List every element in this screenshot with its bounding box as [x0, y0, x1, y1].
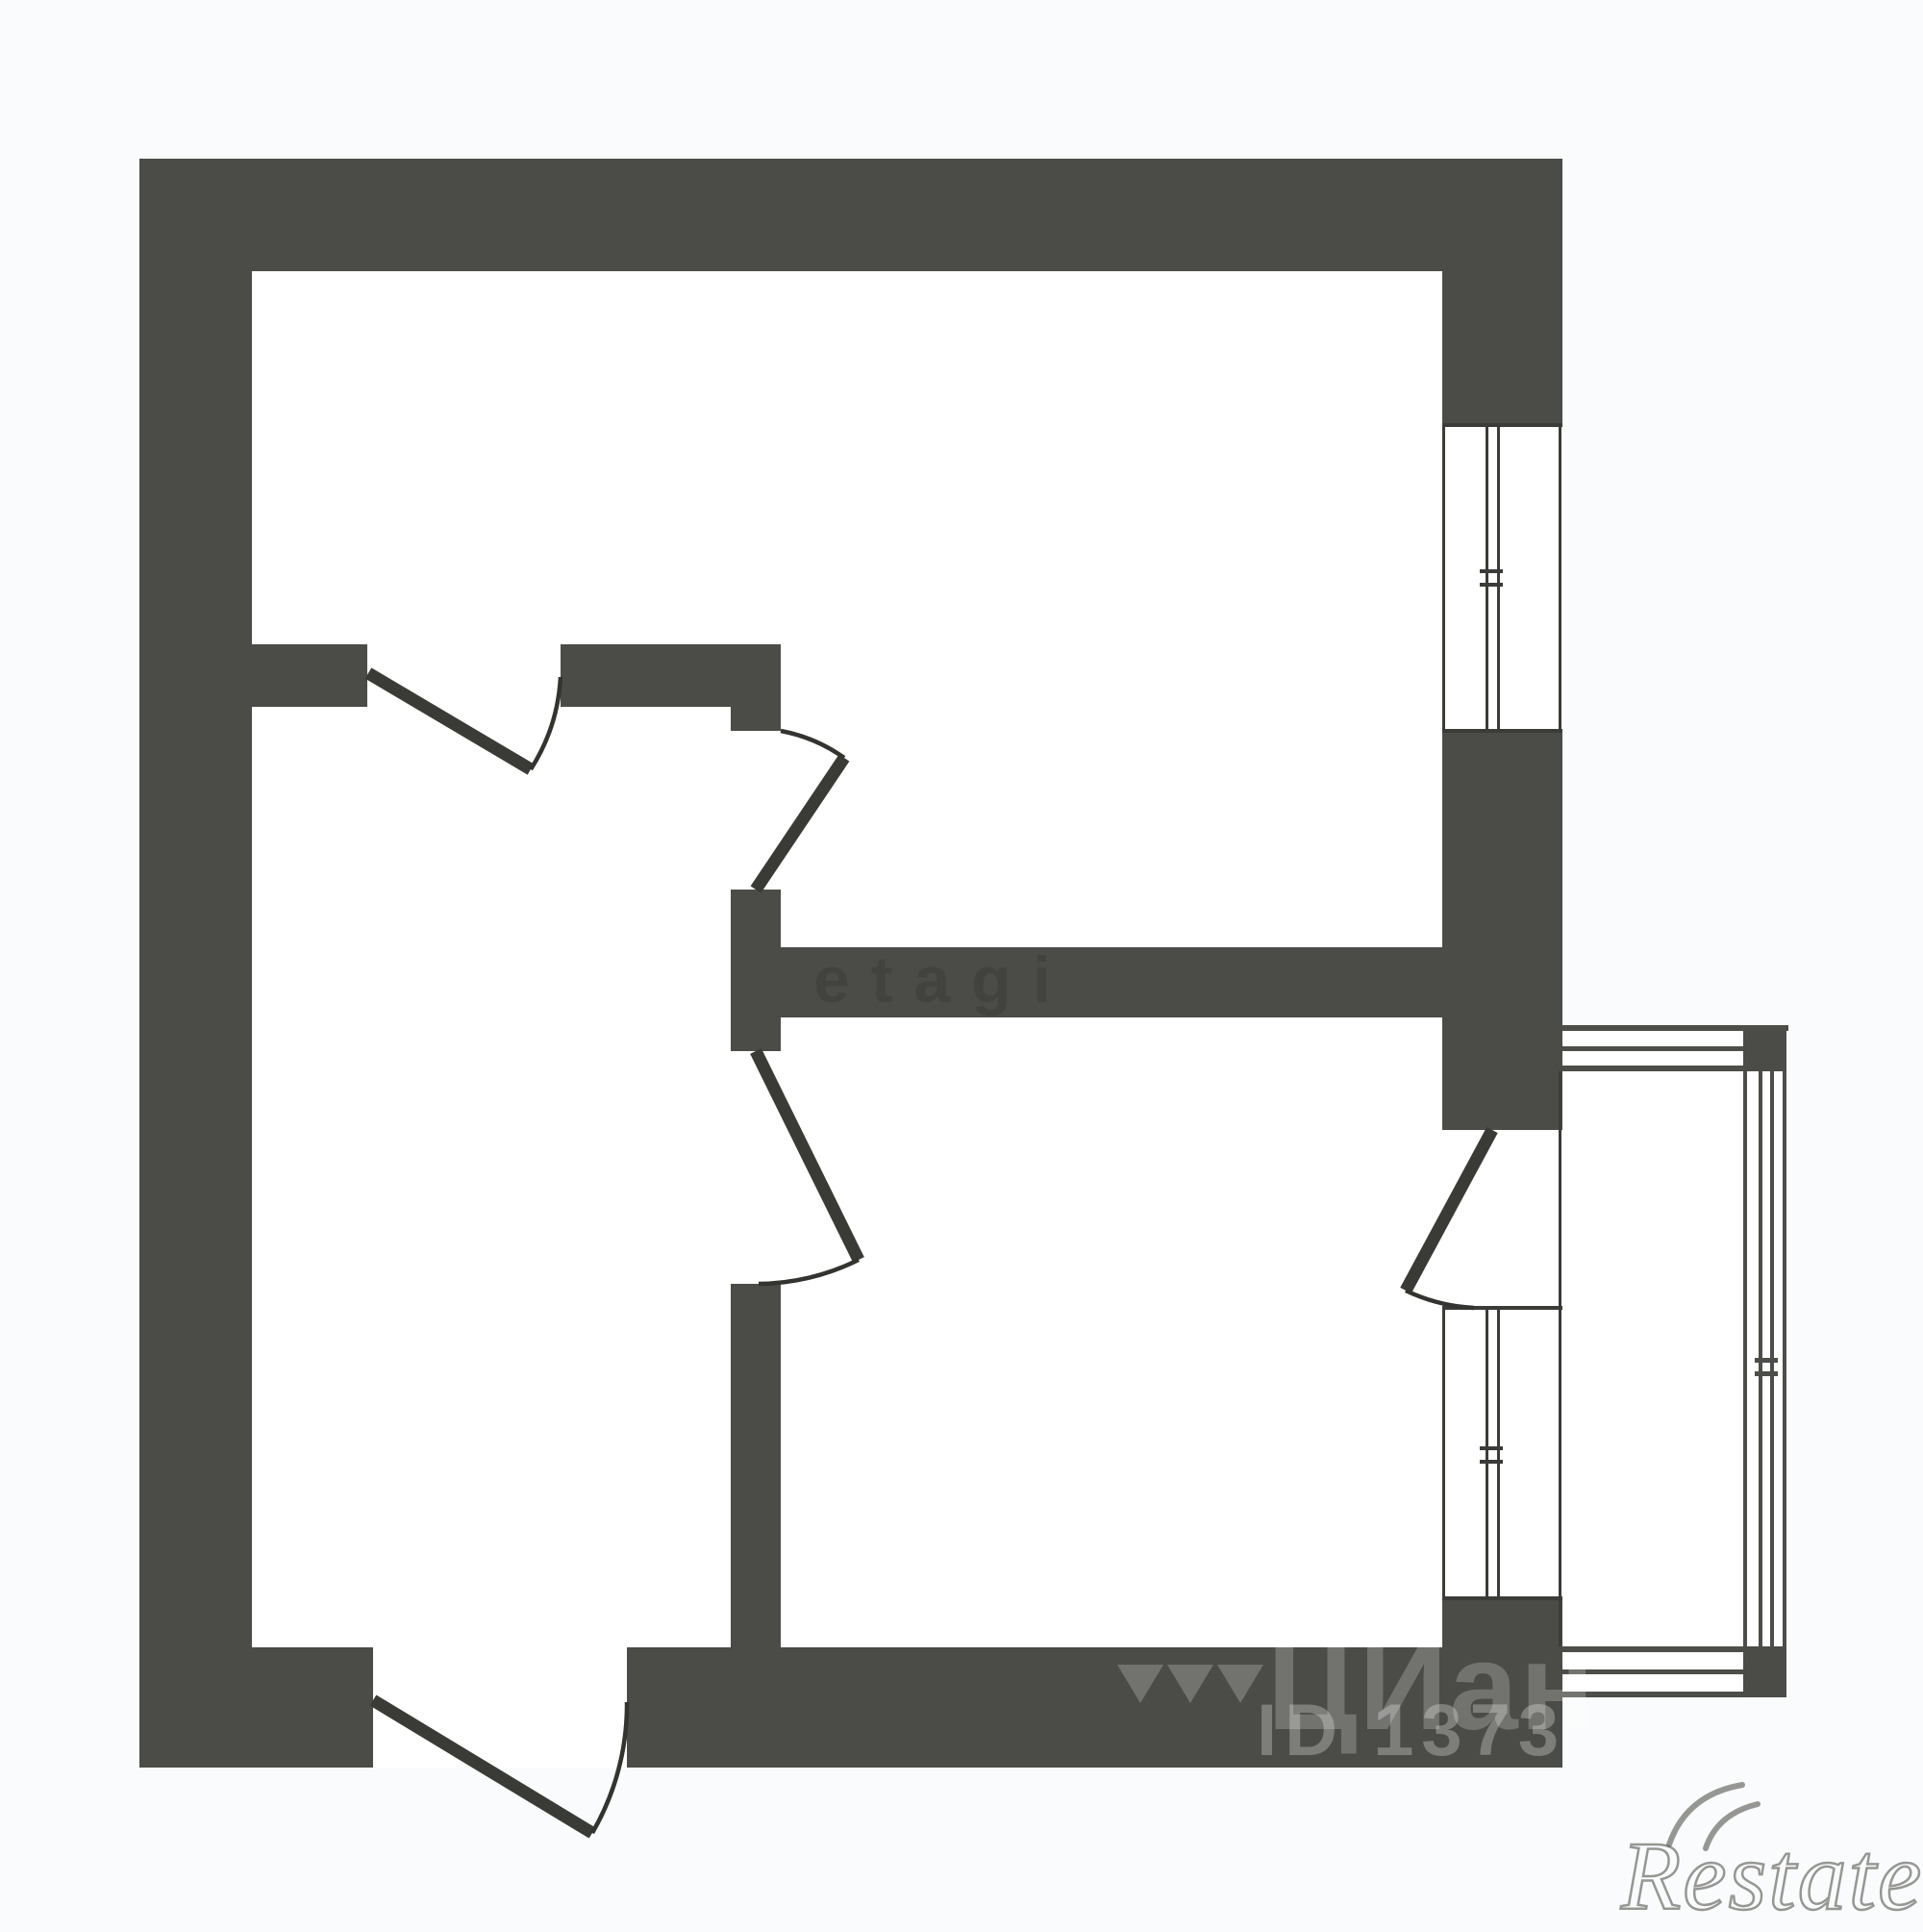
watermark-etagi-text: etagi	[813, 943, 1072, 1016]
cian-logo-tooth-icon	[1167, 1665, 1213, 1703]
door-entrance-leaf	[373, 1700, 592, 1833]
door-room2-swing-arc	[759, 1260, 859, 1284]
cian-logo-tooth-icon	[1117, 1665, 1163, 1703]
restate-swoosh-stroke	[1706, 1804, 1758, 1848]
door-room1-leaf	[368, 673, 531, 769]
watermark-cian-id: ID 1373	[1257, 1689, 1566, 1772]
watermark-restate-logo: Restate	[1621, 1819, 1923, 1932]
door-balcony-leaf	[1406, 1130, 1492, 1291]
door-room1-swing-arc	[531, 677, 561, 769]
door-kitchen-swing-arc	[781, 731, 844, 758]
door-balcony-swing-arc	[1406, 1291, 1474, 1308]
cian-logo-teeth	[1117, 1608, 1267, 1749]
door-entrance-swing-arc	[592, 1702, 627, 1833]
watermark-etagi: etagi	[813, 950, 1072, 1012]
door-kitchen-leaf	[756, 758, 844, 890]
watermark-cian-id-text: ID 1373	[1257, 1690, 1566, 1771]
door-room2-leaf	[756, 1051, 859, 1260]
restate-swoosh-icon	[1621, 1775, 1923, 1900]
floorplan-page: { "theme": { "page_bg": "#fafbfc", "floo…	[0, 0, 1923, 1923]
floorplan-canvas: etagi ЦИан ID 1373 Restate	[0, 0, 1923, 1923]
